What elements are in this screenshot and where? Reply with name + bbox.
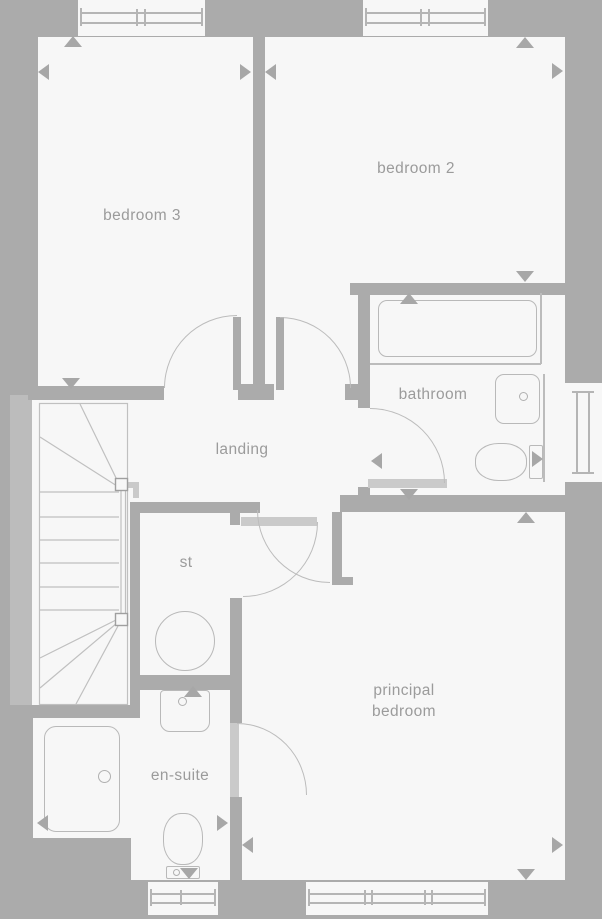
floor-plan: bedroom 3 bedroom 2 bathroom landing st … [0, 0, 602, 919]
marker-arrow-icon [371, 453, 382, 469]
window-bathroom [563, 383, 602, 482]
room-label-bedroom-3: bedroom 3 [62, 205, 222, 226]
toilet-bowl-icon [475, 443, 527, 481]
ensuite-toilet-bowl-icon [163, 813, 203, 865]
marker-arrow-icon [184, 686, 202, 697]
cistern-button-icon [173, 869, 180, 876]
ensuite-basin-tap-icon [178, 697, 187, 706]
marker-arrow-icon [400, 489, 418, 500]
marker-arrow-icon [62, 378, 80, 389]
room-label-bathroom: bathroom [353, 384, 513, 405]
room-label-storage: st [146, 552, 226, 573]
marker-arrow-icon [64, 36, 82, 47]
marker-arrow-icon [552, 837, 563, 853]
marker-arrow-icon [517, 869, 535, 880]
window-bedroom-2 [363, 0, 488, 36]
counter-line [543, 374, 545, 482]
room-label-ensuite: en-suite [100, 765, 260, 786]
marker-arrow-icon [180, 868, 198, 879]
window-principal-bedroom [306, 882, 488, 915]
room-label-bedroom-2: bedroom 2 [336, 158, 496, 179]
window-bedroom-3 [78, 0, 205, 36]
room-label-principal-bedroom: principal bedroom [354, 680, 454, 722]
marker-arrow-icon [265, 64, 276, 80]
basin-tap-icon [519, 392, 528, 401]
hot-water-cylinder-icon [155, 611, 215, 671]
marker-arrow-icon [38, 64, 49, 80]
bath-niche-line [540, 293, 542, 364]
window-ensuite [148, 882, 218, 915]
room-label-landing: landing [162, 439, 322, 460]
marker-arrow-icon [242, 837, 253, 853]
marker-arrow-icon [400, 293, 418, 304]
marker-arrow-icon [532, 451, 543, 467]
marker-arrow-icon [217, 815, 228, 831]
marker-arrow-icon [517, 512, 535, 523]
marker-arrow-icon [516, 37, 534, 48]
marker-arrow-icon [240, 64, 251, 80]
bath-icon [378, 300, 537, 357]
marker-arrow-icon [516, 271, 534, 282]
marker-arrow-icon [552, 63, 563, 79]
bath-niche-line [370, 363, 541, 365]
marker-arrow-icon [37, 815, 48, 831]
